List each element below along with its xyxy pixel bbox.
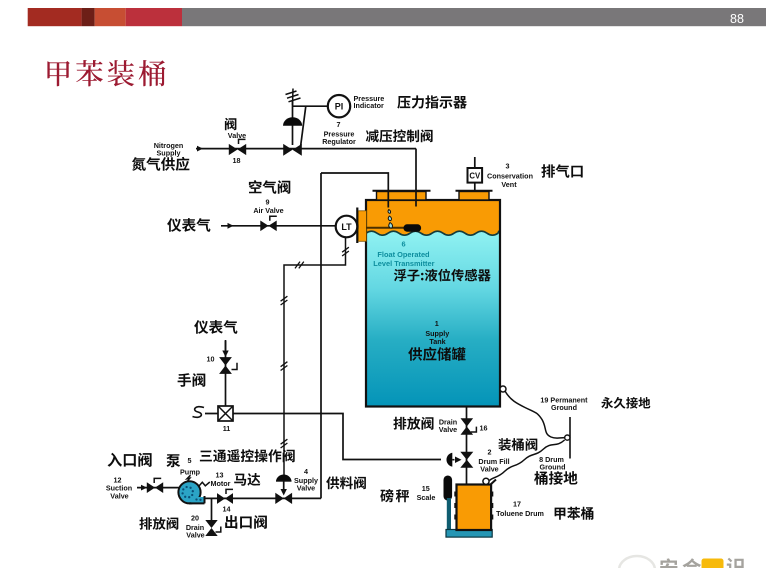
svg-text:LT: LT xyxy=(341,222,352,232)
svg-text:Indicator: Indicator xyxy=(354,101,385,110)
svg-text:Valve: Valve xyxy=(297,483,315,492)
svg-text:Level Transmitter: Level Transmitter xyxy=(373,259,434,268)
svg-text:2: 2 xyxy=(488,447,492,456)
svg-text:5: 5 xyxy=(188,456,192,465)
svg-text:3: 3 xyxy=(506,162,510,171)
svg-text:Conservation: Conservation xyxy=(487,171,533,180)
svg-text:18: 18 xyxy=(233,156,241,165)
svg-text:Valve: Valve xyxy=(110,491,128,500)
svg-text:Supply: Supply xyxy=(157,149,181,158)
svg-text:Scale: Scale xyxy=(417,493,436,502)
svg-text:Air Valve: Air Valve xyxy=(253,206,283,215)
svg-text:PI: PI xyxy=(335,102,344,112)
svg-text:Valve: Valve xyxy=(480,464,498,473)
svg-text:9: 9 xyxy=(266,197,270,206)
svg-text:14: 14 xyxy=(223,504,231,513)
svg-text:15: 15 xyxy=(422,484,430,493)
svg-text:4: 4 xyxy=(304,467,308,476)
svg-text:Toluene Drum: Toluene Drum xyxy=(496,509,544,518)
svg-text:Regulator: Regulator xyxy=(322,137,356,146)
svg-text:6: 6 xyxy=(401,239,405,248)
svg-text:Ground: Ground xyxy=(540,462,566,471)
svg-text:11: 11 xyxy=(223,424,231,433)
svg-text:Ground: Ground xyxy=(551,403,577,412)
svg-text:Valve: Valve xyxy=(439,425,457,434)
svg-text:Valve: Valve xyxy=(228,131,246,140)
svg-text:10: 10 xyxy=(207,354,215,363)
svg-text:Tank: Tank xyxy=(429,337,445,346)
svg-text:88: 88 xyxy=(730,12,744,26)
svg-text:Float Operated: Float Operated xyxy=(377,250,430,259)
svg-text:Pump: Pump xyxy=(180,467,201,476)
svg-text:17: 17 xyxy=(513,499,521,508)
svg-text:Vent: Vent xyxy=(501,180,517,189)
svg-text:16: 16 xyxy=(480,423,488,432)
svg-text:Motor: Motor xyxy=(211,479,231,488)
svg-text:Valve: Valve xyxy=(186,530,204,539)
svg-text:1: 1 xyxy=(435,319,439,328)
svg-text:7: 7 xyxy=(337,120,341,129)
svg-text:20: 20 xyxy=(191,513,199,522)
svg-text:CV: CV xyxy=(469,172,481,181)
